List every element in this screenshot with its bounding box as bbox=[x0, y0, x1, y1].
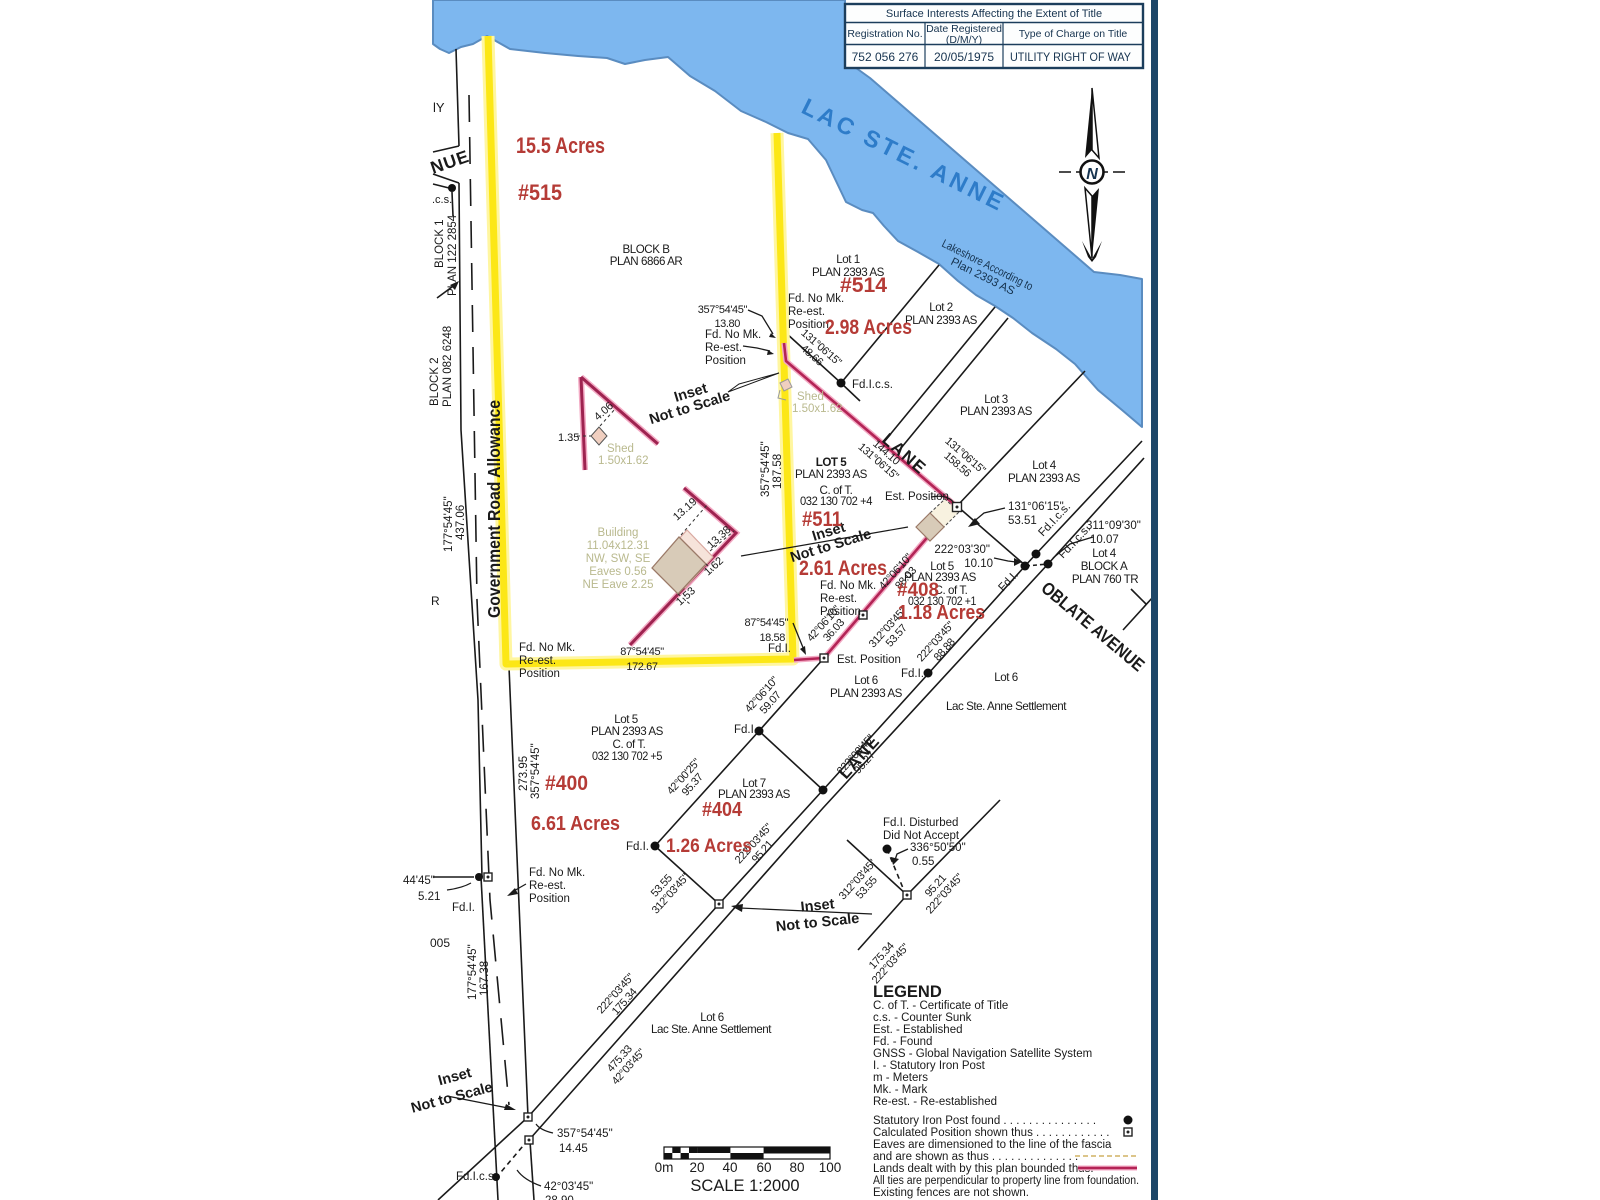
svg-text:42°03'45": 42°03'45" bbox=[544, 1181, 593, 1193]
svg-text:m - Meters: m - Meters bbox=[873, 1072, 928, 1084]
svg-text:lY: lY bbox=[433, 100, 445, 115]
svg-text:Type of Charge on Title: Type of Charge on Title bbox=[1019, 28, 1128, 40]
svg-text:Re-est.: Re-est. bbox=[820, 593, 857, 605]
svg-text:187.58: 187.58 bbox=[772, 454, 784, 489]
svg-text:Shed: Shed bbox=[607, 443, 634, 455]
svg-text:40: 40 bbox=[722, 1160, 737, 1175]
svg-text:BLOCK 1: BLOCK 1 bbox=[434, 219, 446, 268]
svg-text:Fd.I.c.s.: Fd.I.c.s. bbox=[456, 1171, 497, 1183]
svg-text:20/05/1975: 20/05/1975 bbox=[934, 50, 994, 64]
svg-text:2.61 Acres: 2.61 Acres bbox=[799, 557, 887, 580]
svg-text:Lot 4: Lot 4 bbox=[1092, 547, 1117, 560]
svg-text:15.5 Acres: 15.5 Acres bbox=[516, 133, 605, 158]
svg-text:#514: #514 bbox=[840, 274, 887, 297]
svg-text:273.95: 273.95 bbox=[518, 756, 530, 791]
svg-text:Registration No.: Registration No. bbox=[847, 28, 922, 40]
svg-text:032 130 702 +4: 032 130 702 +4 bbox=[800, 495, 873, 508]
svg-text:10.10: 10.10 bbox=[964, 558, 993, 570]
svg-text:Fd.I.c.s.: Fd.I.c.s. bbox=[852, 379, 893, 391]
svg-text:Existing fences are not shown.: Existing fences are not shown. bbox=[873, 1187, 1029, 1199]
svg-text:20: 20 bbox=[689, 1160, 704, 1175]
svg-text:Re-est.: Re-est. bbox=[529, 880, 566, 892]
svg-text:Lot 1: Lot 1 bbox=[836, 253, 860, 266]
svg-text:177°54'45": 177°54'45" bbox=[467, 944, 479, 1000]
svg-text:6.61 Acres: 6.61 Acres bbox=[531, 813, 620, 835]
svg-text:Fd. No Mk.: Fd. No Mk. bbox=[519, 642, 575, 654]
svg-text:11.04x12.31: 11.04x12.31 bbox=[587, 540, 649, 552]
svg-text:Lot 2: Lot 2 bbox=[929, 301, 953, 314]
svg-text:C. of T. - Certificate of Titl: C. of T. - Certificate of Title bbox=[873, 1000, 1008, 1012]
svg-text:87°54'45": 87°54'45" bbox=[620, 646, 664, 658]
svg-text:PLAN 122 2854: PLAN 122 2854 bbox=[447, 214, 459, 296]
svg-text:PLAN 2393 AS: PLAN 2393 AS bbox=[795, 468, 868, 481]
svg-text:Fd.I.: Fd.I. bbox=[626, 841, 649, 853]
svg-text:PLAN 2393 AS: PLAN 2393 AS bbox=[960, 405, 1033, 418]
svg-text:All ties are perpendicular to: All ties are perpendicular to property l… bbox=[873, 1175, 1139, 1187]
svg-text:Position: Position bbox=[705, 355, 746, 367]
svg-text:357°54'45": 357°54'45" bbox=[760, 441, 772, 497]
svg-text:Fd.I.: Fd.I. bbox=[768, 643, 791, 655]
svg-text:Re-est. - Re-established: Re-est. - Re-established bbox=[873, 1096, 997, 1108]
svg-text:Surface Interests Affecting th: Surface Interests Affecting the Extent o… bbox=[886, 8, 1102, 20]
svg-text:172.67: 172.67 bbox=[626, 661, 658, 673]
svg-text:c.s. - Counter Sunk: c.s. - Counter Sunk bbox=[873, 1012, 972, 1024]
svg-text:Lot 6: Lot 6 bbox=[854, 674, 878, 687]
svg-text:5.21: 5.21 bbox=[418, 891, 440, 903]
svg-text:Building: Building bbox=[598, 527, 639, 539]
svg-text:Statutory Iron Post found . .: Statutory Iron Post found . . . . . . . … bbox=[873, 1115, 1096, 1127]
svg-text:Fd.I.: Fd.I. bbox=[734, 724, 757, 736]
svg-text:1.50x1.62: 1.50x1.62 bbox=[598, 455, 649, 467]
svg-text:Est. Position: Est. Position bbox=[837, 654, 901, 666]
svg-text:#404: #404 bbox=[702, 799, 743, 821]
svg-text:SCALE 1:2000: SCALE 1:2000 bbox=[690, 1177, 799, 1195]
svg-text:PLAN 2393 AS: PLAN 2393 AS bbox=[591, 725, 664, 738]
svg-text:Lot 6: Lot 6 bbox=[994, 671, 1018, 684]
svg-text:Did Not Accept: Did Not Accept bbox=[883, 830, 960, 842]
svg-text:2.98 Acres: 2.98 Acres bbox=[825, 316, 912, 339]
svg-text:005: 005 bbox=[430, 936, 450, 950]
svg-text:1.26 Acres: 1.26 Acres bbox=[666, 836, 752, 857]
svg-text:PLAN 6866 AR: PLAN 6866 AR bbox=[610, 255, 683, 268]
svg-text:Eaves are dimensioned to the l: Eaves are dimensioned to the line of the… bbox=[873, 1139, 1112, 1151]
svg-text:10.07: 10.07 bbox=[1090, 534, 1119, 546]
svg-text:357°54'45": 357°54'45" bbox=[530, 743, 542, 799]
svg-text:Shed: Shed bbox=[797, 391, 824, 403]
svg-text:.c.s.: .c.s. bbox=[432, 194, 452, 206]
svg-text:222°03'30": 222°03'30" bbox=[934, 544, 990, 556]
svg-text:Est. - Established: Est. - Established bbox=[873, 1024, 962, 1036]
svg-text:Fd.I.: Fd.I. bbox=[452, 902, 475, 914]
svg-text:PLAN 082 6248: PLAN 082 6248 bbox=[442, 326, 454, 407]
svg-text:Lot 4: Lot 4 bbox=[1032, 459, 1057, 472]
svg-text:R: R bbox=[431, 594, 440, 608]
svg-text:0m: 0m bbox=[655, 1160, 674, 1175]
svg-text:Est. Position: Est. Position bbox=[885, 491, 949, 503]
svg-text:Fd. No Mk.: Fd. No Mk. bbox=[529, 867, 585, 879]
svg-text:Fd. - Found: Fd. - Found bbox=[873, 1036, 932, 1048]
svg-text:BLOCK 2: BLOCK 2 bbox=[429, 357, 441, 406]
svg-text:Re-est.: Re-est. bbox=[519, 655, 556, 667]
svg-text:#515: #515 bbox=[518, 180, 562, 205]
svg-text:and are shown as thus . . . .: and are shown as thus . . . . . . . . . … bbox=[873, 1151, 1078, 1163]
svg-text:#408: #408 bbox=[897, 580, 939, 601]
svg-text:Fd.I.: Fd.I. bbox=[901, 668, 924, 680]
svg-text:PLAN 2393 AS: PLAN 2393 AS bbox=[1008, 472, 1081, 485]
svg-text:Eaves 0.56: Eaves 0.56 bbox=[589, 566, 647, 578]
svg-text:752 056 276: 752 056 276 bbox=[852, 50, 919, 64]
svg-text:UTILITY RIGHT OF WAY: UTILITY RIGHT OF WAY bbox=[1010, 50, 1131, 64]
svg-text:Position: Position bbox=[519, 668, 560, 680]
svg-text:60: 60 bbox=[756, 1160, 771, 1175]
svg-text:Government Road Allowance: Government Road Allowance bbox=[484, 400, 504, 618]
svg-text:I. - Statutory Iron Post: I. - Statutory Iron Post bbox=[873, 1060, 986, 1072]
svg-text:44'45": 44'45" bbox=[403, 875, 435, 887]
svg-text:1.50x1.62: 1.50x1.62 bbox=[792, 403, 843, 415]
svg-text:Lands dealt with by this plan: Lands dealt with by this plan bounded th… bbox=[873, 1163, 1094, 1175]
svg-text:N: N bbox=[1086, 166, 1098, 183]
svg-text:Re-est.: Re-est. bbox=[705, 342, 742, 354]
svg-text:87°54'45": 87°54'45" bbox=[744, 617, 788, 629]
svg-text:336°50'50": 336°50'50" bbox=[910, 842, 966, 854]
svg-text:032 130 702 +5: 032 130 702 +5 bbox=[592, 750, 662, 763]
svg-text:53.51: 53.51 bbox=[1008, 515, 1037, 527]
svg-text:Calculated Position shown thus: Calculated Position shown thus . . . . .… bbox=[873, 1127, 1110, 1139]
svg-text:1.35: 1.35 bbox=[558, 432, 579, 444]
svg-text:LEGEND: LEGEND bbox=[873, 983, 942, 1001]
svg-text:437.06: 437.06 bbox=[455, 505, 467, 540]
svg-text:Re-est.: Re-est. bbox=[788, 306, 825, 318]
svg-text:GNSS - Global Navigation Satel: GNSS - Global Navigation Satellite Syste… bbox=[873, 1048, 1092, 1060]
svg-text:BLOCK A: BLOCK A bbox=[1081, 560, 1128, 573]
svg-text:Lac Ste. Anne Settlement: Lac Ste. Anne Settlement bbox=[651, 1023, 772, 1036]
svg-text:Mk. - Mark: Mk. - Mark bbox=[873, 1084, 928, 1096]
svg-text:Position: Position bbox=[529, 893, 570, 905]
svg-text:#511: #511 bbox=[802, 508, 842, 531]
svg-text:Position: Position bbox=[820, 606, 861, 618]
svg-text:177°54'45": 177°54'45" bbox=[443, 496, 455, 552]
svg-text:357°54'45": 357°54'45" bbox=[557, 1128, 613, 1140]
svg-text:Lac Ste. Anne Settlement: Lac Ste. Anne Settlement bbox=[946, 700, 1067, 713]
svg-text:(D/M/Y): (D/M/Y) bbox=[946, 34, 982, 46]
svg-text:PLAN 2393 AS: PLAN 2393 AS bbox=[830, 687, 903, 700]
svg-text:1.18 Acres: 1.18 Acres bbox=[898, 602, 985, 624]
svg-text:311°09'30": 311°09'30" bbox=[1086, 520, 1141, 532]
svg-text:Fd. No Mk.: Fd. No Mk. bbox=[820, 580, 876, 592]
svg-text:NE Eave 2.25: NE Eave 2.25 bbox=[583, 579, 654, 591]
svg-text:0.55: 0.55 bbox=[912, 856, 934, 868]
svg-text:14.45: 14.45 bbox=[559, 1143, 588, 1155]
svg-text:Fd. No Mk.: Fd. No Mk. bbox=[788, 293, 844, 305]
svg-text:80: 80 bbox=[789, 1160, 804, 1175]
svg-text:Fd.I. Disturbed: Fd.I. Disturbed bbox=[883, 817, 958, 829]
svg-text:NW, SW, SE: NW, SW, SE bbox=[586, 553, 651, 565]
svg-text:Position: Position bbox=[788, 319, 829, 331]
svg-text:357°54'45": 357°54'45" bbox=[698, 304, 748, 316]
svg-text:28.90: 28.90 bbox=[545, 1195, 574, 1200]
svg-text:PLAN 760 TR: PLAN 760 TR bbox=[1072, 573, 1138, 586]
svg-text:167.38: 167.38 bbox=[479, 961, 491, 996]
svg-text:Fd. No Mk.: Fd. No Mk. bbox=[705, 329, 761, 341]
svg-text:100: 100 bbox=[819, 1160, 842, 1175]
svg-text:PLAN 2393 AS: PLAN 2393 AS bbox=[905, 314, 978, 327]
svg-text:#400: #400 bbox=[545, 772, 588, 795]
